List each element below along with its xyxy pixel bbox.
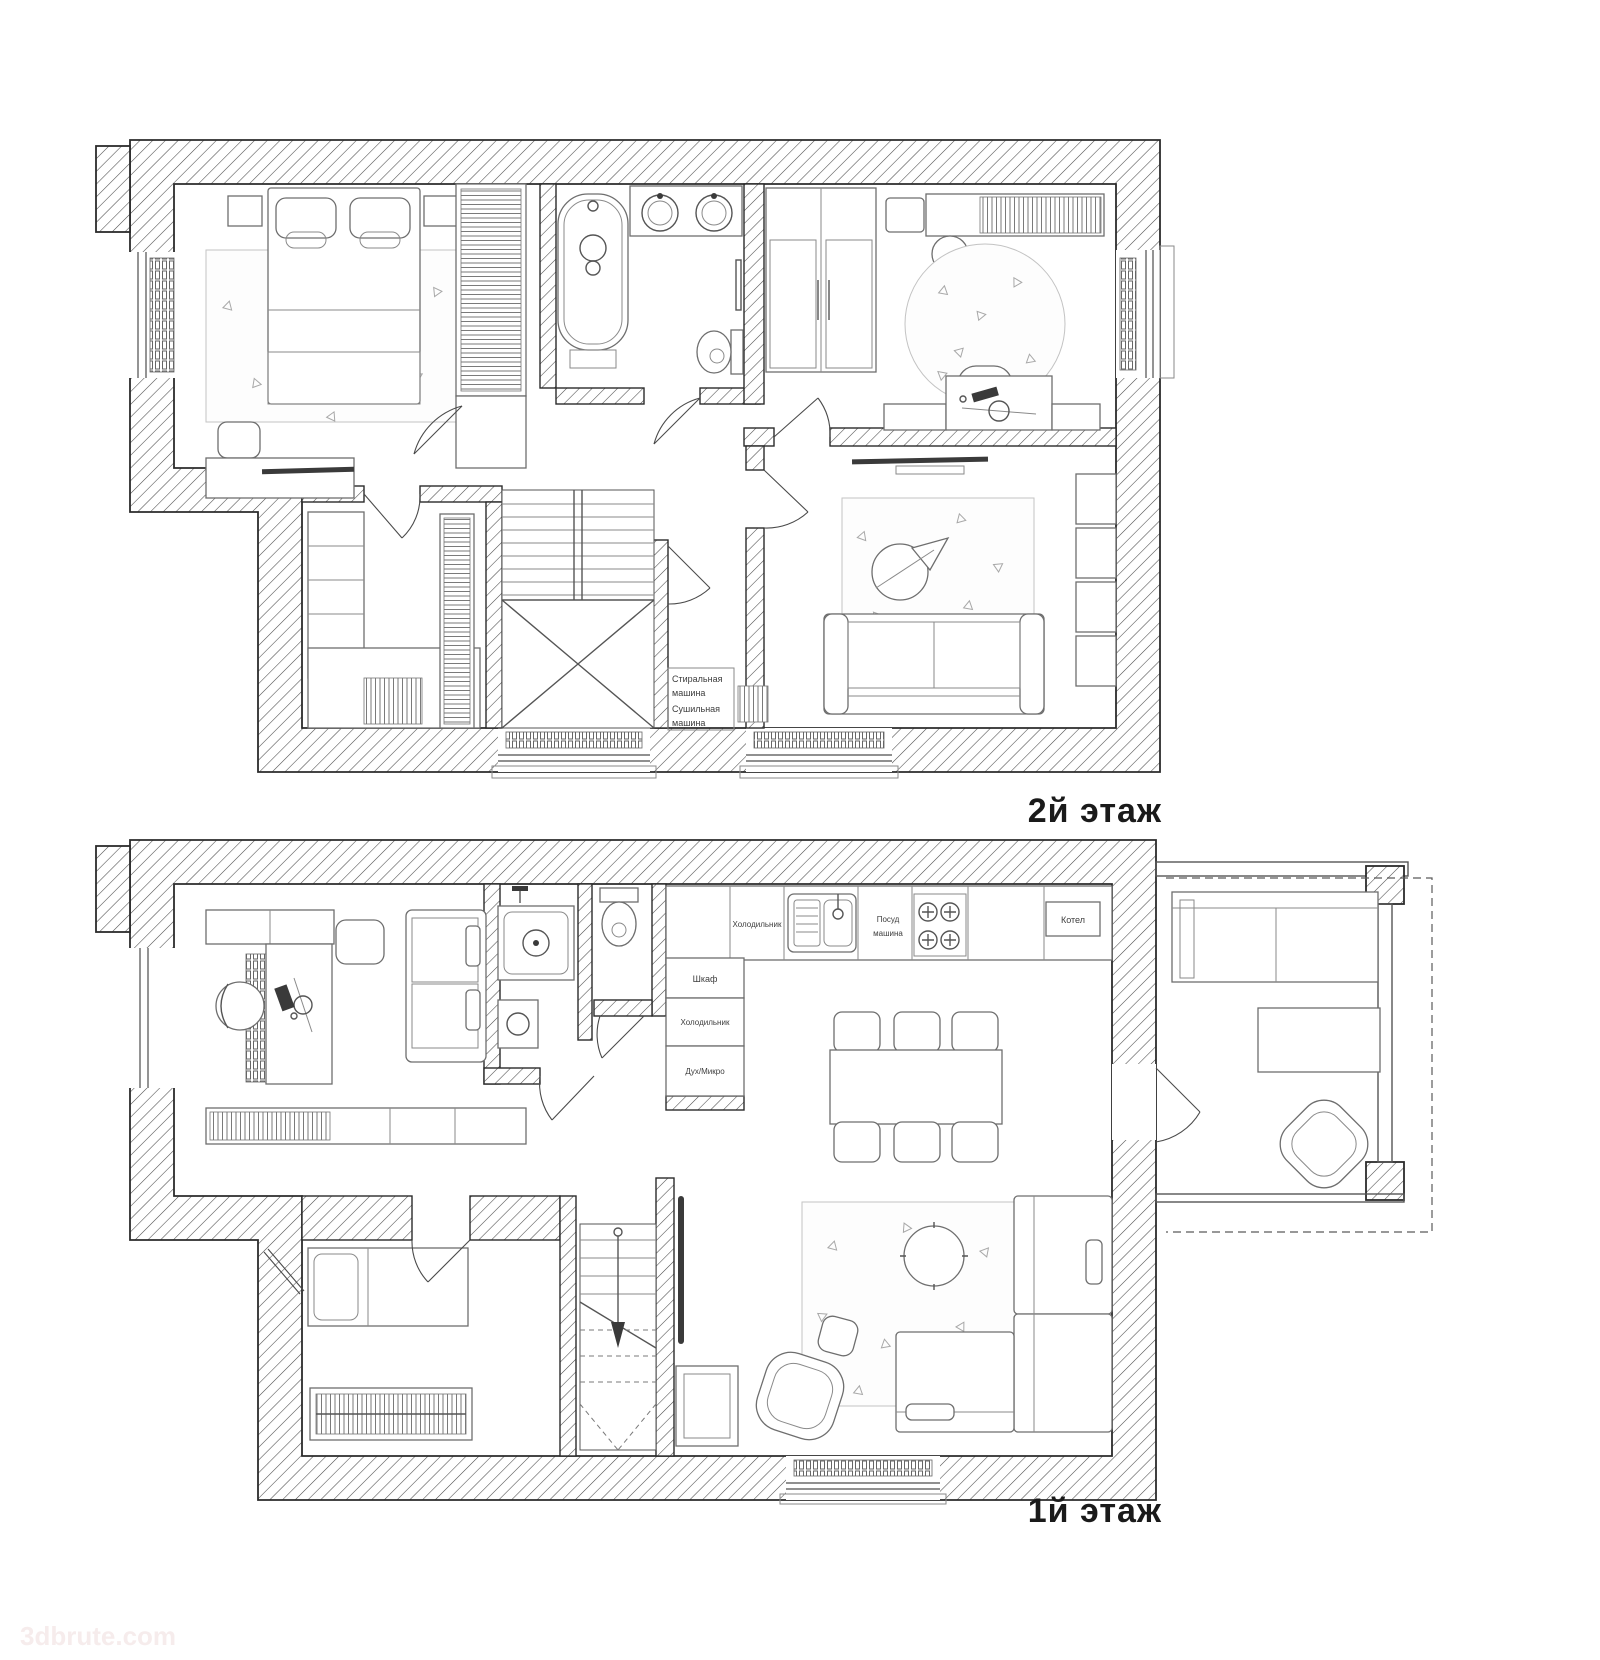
laundry-label-4: машина bbox=[672, 718, 705, 728]
master-bedroom bbox=[206, 184, 526, 498]
washbasin bbox=[498, 1000, 538, 1048]
dining-table bbox=[830, 1050, 1002, 1124]
walk-in-closet bbox=[308, 494, 480, 728]
fridge-label: Холодильник bbox=[733, 920, 782, 929]
window-left bbox=[126, 252, 178, 378]
shower-door bbox=[540, 1076, 594, 1120]
cistern bbox=[600, 888, 638, 902]
chair bbox=[894, 1122, 940, 1162]
tv bbox=[678, 1196, 684, 1344]
floor-plan-sheet: Стиральная машина Сушильная машина 2й эт… bbox=[0, 0, 1600, 1660]
laundry-label-2: машина bbox=[672, 688, 705, 698]
window-sill bbox=[1160, 246, 1174, 378]
window-bottom bbox=[780, 1456, 946, 1504]
radiator bbox=[506, 732, 642, 748]
lounge bbox=[764, 457, 1116, 714]
dishwasher-label-1: Посуд bbox=[877, 915, 900, 924]
bathroom bbox=[558, 186, 743, 444]
laundry-label-1: Стиральная bbox=[672, 674, 723, 684]
dishwasher-label-2: машина bbox=[873, 929, 903, 938]
shelving bbox=[1076, 474, 1116, 686]
radiator bbox=[794, 1460, 932, 1476]
veranda-table bbox=[1258, 1008, 1380, 1072]
first-floor-plan: Холодильник Посуд машина Котел Шкаф bbox=[96, 840, 1432, 1530]
cabinet-label: Шкаф bbox=[693, 974, 718, 984]
pillow bbox=[906, 1404, 954, 1420]
closet bbox=[310, 1388, 472, 1440]
floor-plan-drawing: Стиральная машина Сушильная машина 2й эт… bbox=[0, 0, 1600, 1660]
bath-step bbox=[570, 350, 616, 368]
hanging-section bbox=[364, 678, 422, 724]
veranda-chair bbox=[1270, 1090, 1377, 1197]
bed bbox=[308, 1248, 468, 1326]
fireplace bbox=[676, 1366, 738, 1446]
wc-door bbox=[597, 1016, 644, 1058]
pillow bbox=[466, 990, 480, 1030]
watermark: 3dbrute.com bbox=[20, 1621, 176, 1651]
staircase bbox=[502, 490, 654, 728]
chair bbox=[952, 1122, 998, 1162]
office-sofa bbox=[406, 910, 486, 1062]
radiator bbox=[1120, 258, 1136, 370]
kids-room-door bbox=[774, 398, 830, 437]
kitchen-sink bbox=[788, 894, 856, 952]
tall-units: Шкаф Холодильник Дух/Микро bbox=[666, 958, 744, 1096]
tv-unit bbox=[852, 457, 988, 474]
armrest bbox=[824, 614, 848, 714]
dining-area bbox=[830, 1012, 1002, 1162]
tv-console bbox=[206, 458, 354, 498]
chair bbox=[952, 1012, 998, 1052]
chimney-pier bbox=[96, 146, 130, 232]
desk bbox=[884, 376, 1100, 430]
radiator bbox=[754, 732, 884, 748]
washing-machine bbox=[738, 686, 768, 722]
chair bbox=[894, 1012, 940, 1052]
armrest bbox=[1020, 614, 1044, 714]
oven-micro-label: Дух/Микро bbox=[685, 1067, 725, 1076]
lounge-door bbox=[764, 470, 808, 528]
closet-door bbox=[364, 494, 420, 538]
bathroom-door bbox=[654, 398, 700, 444]
window-bottom-right bbox=[740, 728, 898, 778]
pillow bbox=[466, 926, 480, 966]
fridge-left-label: Холодильник bbox=[681, 1018, 730, 1027]
sideboard bbox=[206, 1108, 526, 1144]
window-right bbox=[1116, 246, 1174, 378]
first-floor-label: 1й этаж bbox=[1028, 1492, 1162, 1530]
wc bbox=[597, 888, 644, 1058]
desk bbox=[266, 944, 332, 1084]
sofa bbox=[824, 614, 1044, 714]
boiler: Котел bbox=[1046, 902, 1100, 936]
living-area bbox=[676, 1196, 1112, 1446]
second-floor-plan: Стиральная машина Сушильная машина 2й эт… bbox=[96, 140, 1174, 830]
nightstand bbox=[228, 196, 262, 226]
pouf bbox=[336, 920, 384, 964]
veranda bbox=[1112, 862, 1432, 1232]
nightstand bbox=[424, 196, 460, 226]
pillow bbox=[1086, 1240, 1102, 1284]
veranda-door bbox=[1112, 1064, 1200, 1142]
chair bbox=[834, 1012, 880, 1052]
bed bbox=[926, 194, 1104, 236]
toilet bbox=[602, 902, 636, 946]
wardrobe-strip bbox=[456, 184, 526, 468]
nightstand bbox=[886, 198, 924, 232]
shower-tray bbox=[498, 906, 574, 980]
towel-rail bbox=[736, 260, 741, 310]
second-floor-label: 2й этаж bbox=[1028, 792, 1162, 830]
boiler-label: Котел bbox=[1061, 915, 1085, 925]
laundry-door bbox=[668, 546, 710, 604]
window-bottom-left bbox=[492, 728, 656, 778]
office-chair bbox=[216, 982, 264, 1030]
laundry-label-3: Сушильная bbox=[672, 704, 720, 714]
toilet bbox=[697, 330, 743, 374]
chair bbox=[834, 1122, 880, 1162]
staircase bbox=[580, 1224, 656, 1450]
bathtub bbox=[558, 190, 628, 368]
vanity-double-sink bbox=[630, 186, 742, 236]
wardrobe bbox=[766, 188, 876, 372]
kids-bedroom bbox=[766, 188, 1104, 430]
hanging-rod bbox=[440, 514, 474, 728]
pouf bbox=[218, 422, 260, 458]
radiator bbox=[150, 258, 174, 372]
chimney-pier bbox=[96, 846, 130, 932]
veranda-sofa bbox=[1172, 892, 1378, 982]
